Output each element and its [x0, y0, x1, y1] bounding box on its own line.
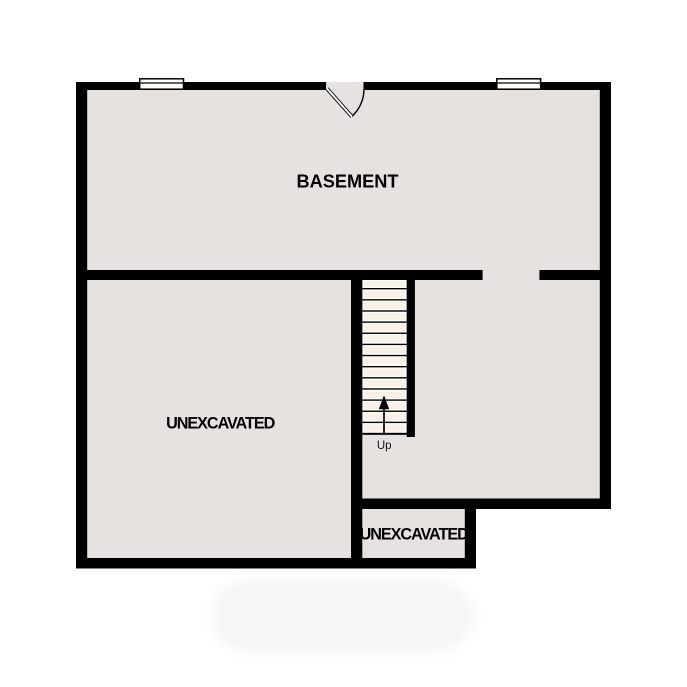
svg-text:UNEXCAVATED: UNEXCAVATED	[166, 414, 275, 432]
svg-text:BASEMENT: BASEMENT	[296, 172, 398, 192]
svg-text:Up: Up	[377, 440, 392, 452]
svg-text:UNEXCAVATED: UNEXCAVATED	[360, 526, 469, 544]
